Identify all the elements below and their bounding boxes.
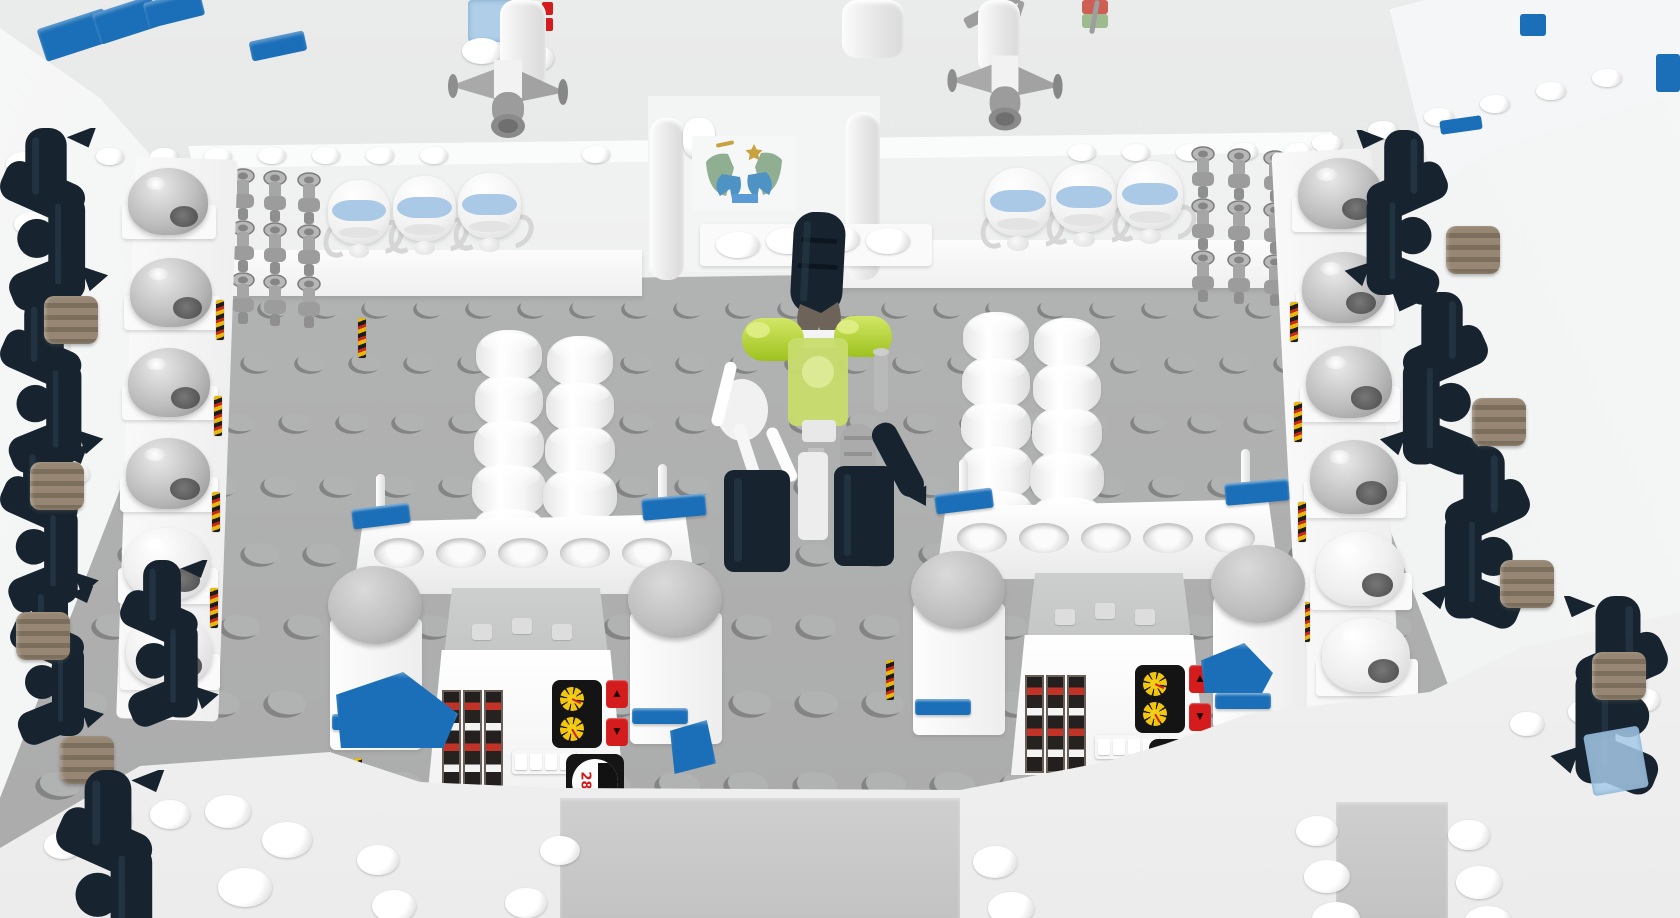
warning-sticker: [1294, 402, 1302, 442]
floor-stud: [795, 615, 836, 640]
dome-highlight: [144, 448, 164, 461]
speaker-cluster-right[interactable]: [947, 48, 1062, 141]
floor-stud: [731, 615, 772, 640]
gauge-icon: [560, 717, 584, 741]
slider-panel-sticker: [1067, 675, 1086, 773]
canister-rim: [968, 315, 1023, 335]
visor-helmet[interactable]: [985, 168, 1051, 251]
canister-rim: [1039, 321, 1094, 341]
dome-opening: [170, 478, 200, 501]
dome-opening: [1362, 573, 1394, 597]
slider-panel-sticker: [463, 690, 482, 788]
visor-helmet[interactable]: [393, 176, 456, 255]
canister-rim: [967, 359, 1024, 380]
dome-highlight: [1335, 542, 1356, 555]
canister-rim: [1037, 409, 1096, 430]
dome-opening: [173, 297, 203, 319]
blue-roof-plate[interactable]: [143, 0, 206, 29]
visor-helmet[interactable]: [1051, 164, 1117, 247]
floor-stud: [465, 300, 495, 319]
canister-rim: [480, 377, 537, 398]
helmet-visor: [397, 197, 451, 218]
slider-panel-sticker: [1025, 675, 1044, 773]
canister-rim: [550, 427, 609, 448]
gauge-panel-sticker: [1135, 665, 1185, 733]
floor-stud: [403, 354, 435, 374]
floor-stud: [219, 615, 260, 640]
helmet-chin: [997, 218, 1039, 230]
foreground-stud: [218, 868, 272, 907]
deck-bump: [512, 618, 532, 634]
helmet-visor: [1056, 186, 1113, 208]
warning-sticker: [212, 492, 220, 532]
floor-stud: [861, 691, 904, 718]
arrow-up-glyph: ▲: [611, 686, 623, 700]
wall-top-stud: [1122, 144, 1150, 161]
dial-value: 28: [578, 771, 593, 789]
floor-stud: [361, 300, 391, 319]
canister-rim: [1038, 365, 1095, 386]
visor-helmet[interactable]: [458, 173, 521, 252]
dome-helmet-left[interactable]: [130, 258, 212, 327]
canister-column[interactable]: [1034, 318, 1100, 368]
foreground-stud: [988, 892, 1034, 918]
weapon-cluster-left[interactable]: [0, 128, 110, 318]
deck-bump: [1055, 609, 1075, 625]
ammo-coil-left[interactable]: [30, 462, 84, 510]
control-console-left[interactable]: ▲▼28: [322, 470, 726, 800]
ammo-coil-right[interactable]: [1592, 652, 1646, 700]
trans-blue-slope[interactable]: [1583, 726, 1649, 797]
speaker-cluster-left[interactable]: [448, 52, 568, 149]
key[interactable]: [1098, 739, 1110, 755]
arrow-button-up[interactable]: ▲: [606, 680, 628, 708]
blaster-stack-left[interactable]: [292, 172, 326, 337]
floor-stud: [335, 413, 369, 434]
slider-panel-sticker: [484, 690, 503, 788]
dome-highlight: [1320, 262, 1340, 275]
key[interactable]: [1113, 739, 1125, 755]
floor-stud: [1243, 413, 1277, 434]
dome-helmet-left[interactable]: [126, 438, 210, 509]
dome-highlight: [148, 268, 168, 280]
foreground-stud: [262, 822, 312, 858]
console-recess-circle: [1143, 523, 1193, 553]
dome-highlight: [146, 177, 165, 189]
dome-highlight: [1316, 168, 1336, 181]
floor-stud: [283, 615, 324, 640]
deck-bump: [552, 624, 572, 640]
floor-stud: [391, 413, 425, 434]
floor-stud: [1089, 300, 1119, 319]
key[interactable]: [530, 754, 542, 770]
wall-top-stud: [1592, 69, 1622, 87]
floor-stud: [619, 413, 653, 434]
floor-stud: [569, 300, 599, 319]
lego-3d-viewport[interactable]: ▲▼28▲▼28: [0, 0, 1680, 918]
dome-highlight: [1341, 628, 1362, 641]
visor-helmet[interactable]: [1117, 161, 1183, 244]
blaster-stack-right[interactable]: [1186, 146, 1220, 311]
console-drum[interactable]: [328, 566, 422, 644]
arrow-down-glyph: ▼: [1194, 709, 1206, 723]
console-drum-tower: [628, 560, 724, 756]
helmet-chin: [1129, 211, 1171, 223]
floor-stud: [673, 300, 703, 319]
floor-stud: [620, 354, 652, 374]
floor-stud: [728, 691, 771, 718]
floor-stud: [675, 413, 709, 434]
console-recess-circle: [1081, 523, 1131, 553]
gauge-icon: [1143, 702, 1167, 726]
ammo-coil-left[interactable]: [44, 296, 98, 344]
visor-helmet[interactable]: [328, 180, 390, 258]
console-blue-tile: [641, 493, 707, 520]
console-recess-circle: [1019, 523, 1069, 553]
console-recess-circle: [374, 538, 424, 568]
floor-stud: [294, 354, 326, 374]
dome-highlight: [1329, 450, 1350, 463]
dome-highlight: [143, 538, 164, 551]
warning-sticker: [886, 660, 894, 700]
console-drum[interactable]: [628, 560, 722, 638]
floor-stud: [1187, 413, 1221, 434]
wall-top-stud: [312, 147, 340, 164]
foreground-stud: [505, 888, 547, 918]
foreground-stud: [1296, 816, 1338, 846]
floor-stud: [675, 354, 707, 374]
floor-stud: [1130, 413, 1164, 434]
weapon-cluster-left[interactable]: [10, 586, 106, 751]
dome-opening: [171, 387, 201, 409]
helmet-mouthpiece: [414, 241, 434, 255]
console-front-slope: ▲▼28: [428, 650, 624, 790]
canister-rim: [551, 383, 608, 404]
foreground-stud: [1456, 866, 1502, 899]
floor-stud: [260, 476, 297, 499]
canister-rim: [552, 339, 607, 359]
console-drum-tower: [911, 551, 1007, 747]
floor-stud: [794, 691, 837, 718]
foreground-gray-plate[interactable]: [560, 798, 960, 918]
helmet-chin: [469, 221, 509, 232]
console-recess-circle: [957, 523, 1007, 553]
warning-sticker: [214, 396, 222, 436]
canister-rim: [966, 403, 1025, 424]
deck-bump: [1135, 609, 1155, 625]
dome-opening: [170, 206, 199, 228]
ammo-coil-right[interactable]: [1472, 398, 1526, 446]
key[interactable]: [515, 754, 527, 770]
floor-stud: [1164, 354, 1196, 374]
floor-stud: [933, 300, 963, 319]
warning-sticker: [1290, 302, 1298, 342]
weapon-cluster-left[interactable]: [120, 560, 221, 733]
dome-helmet-right[interactable]: [1322, 618, 1410, 692]
floor-stud: [517, 300, 547, 319]
dome-helmet-left[interactable]: [128, 348, 210, 417]
foreground-stud: [372, 890, 416, 918]
helmet-mouthpiece: [1007, 236, 1028, 251]
warning-sticker: [358, 318, 366, 358]
helmet-visor: [462, 194, 516, 215]
helmet-chin: [404, 224, 444, 235]
helmet-chin: [1063, 214, 1105, 226]
warning-sticker: [216, 300, 224, 340]
canister-column[interactable]: [963, 312, 1029, 362]
helmet-visor: [990, 190, 1047, 212]
blue-roof-plate[interactable]: [249, 30, 308, 61]
wall-poster[interactable]: [692, 136, 796, 215]
helmet-chin: [339, 227, 379, 238]
floor-stud: [240, 543, 279, 567]
dome-highlight: [146, 358, 166, 370]
foreground-stud: [1304, 860, 1350, 893]
gauge-icon: [560, 687, 584, 711]
canister-column[interactable]: [547, 336, 613, 386]
maintenance-droid[interactable]: [706, 212, 936, 577]
key[interactable]: [545, 754, 557, 770]
blue-roof-plate[interactable]: [1656, 54, 1680, 92]
wall-top-stud: [582, 146, 610, 163]
dome-helmet-right[interactable]: [1316, 532, 1404, 606]
deck-bump: [472, 624, 492, 640]
canister-column[interactable]: [476, 330, 542, 380]
foreground-stud: [1448, 820, 1490, 850]
floor-stud: [621, 300, 651, 319]
helmet-visor: [332, 200, 385, 221]
wall-top-stud: [366, 147, 394, 164]
foreground-stud: [973, 846, 1017, 878]
wall-top-stud: [1480, 95, 1510, 113]
dome-highlight: [1325, 356, 1346, 369]
helmet-visor: [1122, 183, 1179, 205]
blaster-stack-right[interactable]: [1222, 148, 1256, 313]
blaster-stack-left[interactable]: [258, 170, 292, 335]
wall-top-stud: [1536, 82, 1566, 100]
console-recess-circle: [436, 538, 486, 568]
floor-stud: [240, 354, 272, 374]
helmet-mouthpiece: [1139, 229, 1160, 244]
floor-stud: [1037, 300, 1067, 319]
dome-opening: [1368, 659, 1400, 683]
deck-bump: [1095, 603, 1115, 619]
weapon-cluster-left[interactable]: [56, 770, 181, 918]
weapon-cluster-right[interactable]: [1342, 130, 1448, 312]
console-recess-circle: [560, 538, 610, 568]
arrow-button-down[interactable]: ▼: [1189, 703, 1211, 731]
console-drum[interactable]: [911, 551, 1005, 629]
wall-top-stud: [420, 147, 448, 164]
pedestal-blue-stripe: [632, 708, 688, 724]
floor-stud: [1141, 300, 1171, 319]
foreground-stud: [357, 845, 399, 875]
floor-stud: [1219, 354, 1251, 374]
ammo-coil-right[interactable]: [1500, 560, 1554, 608]
slider-panel-sticker: [1046, 675, 1065, 773]
foreground-stud: [205, 795, 251, 828]
blue-roof-plate[interactable]: [1520, 14, 1546, 36]
pedestal-blue-stripe: [1215, 693, 1271, 709]
arrow-down-glyph: ▼: [611, 724, 623, 738]
ammo-coil-left[interactable]: [16, 612, 70, 660]
upper-post: [842, 0, 904, 58]
gauge-panel-sticker: [552, 680, 602, 748]
console-drum[interactable]: [1211, 545, 1305, 623]
canister-rim: [481, 333, 536, 353]
floor-stud: [263, 691, 306, 718]
console-recess-circle: [498, 538, 548, 568]
wall-pillar-left: [650, 118, 684, 280]
floor-stud: [859, 615, 900, 640]
console-blue-tile: [1224, 478, 1290, 505]
floor-stud: [413, 300, 443, 319]
pedestal-blue-stripe: [915, 699, 971, 715]
foreground-stud: [540, 836, 580, 865]
foreground-gray-plate[interactable]: [1336, 802, 1448, 918]
gauge-icon: [1143, 672, 1167, 696]
wall-top-stud: [1068, 144, 1096, 161]
floor-stud: [278, 413, 312, 434]
canister-rim: [479, 421, 538, 442]
helmet-mouthpiece: [479, 238, 499, 252]
ammo-coil-right[interactable]: [1446, 226, 1500, 274]
floor-stud: [1110, 354, 1142, 374]
dome-helmet-left[interactable]: [128, 168, 208, 235]
helmet-mouthpiece: [1073, 232, 1094, 247]
arrow-button-down[interactable]: ▼: [606, 718, 628, 746]
helmet-mouthpiece: [349, 244, 369, 258]
dome-opening: [1356, 481, 1388, 505]
